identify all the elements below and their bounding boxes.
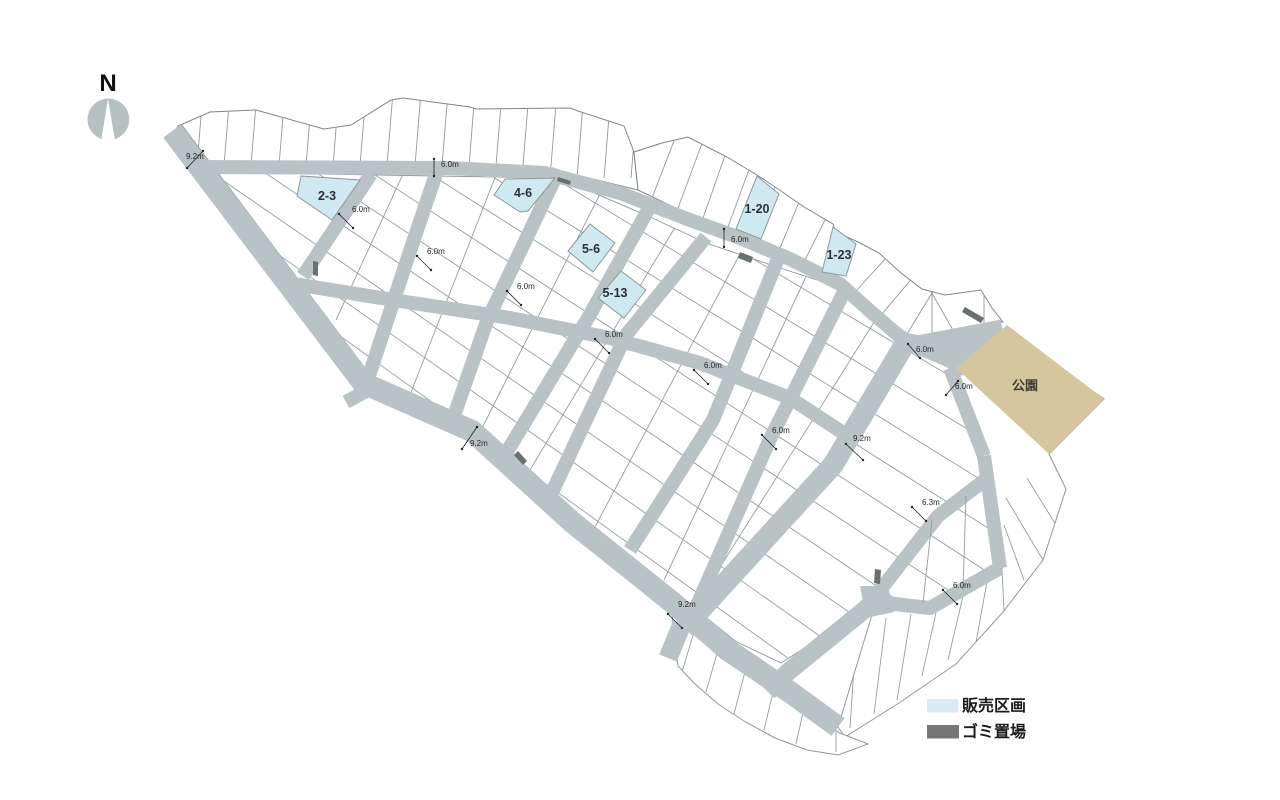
svg-text:6.0m: 6.0m [731,235,749,244]
svg-text:販売区画: 販売区画 [962,696,1026,715]
svg-text:9.2m: 9.2m [853,434,871,443]
svg-text:2-3: 2-3 [318,189,336,203]
svg-text:6.0m: 6.0m [352,205,370,214]
svg-text:6.3m: 6.3m [922,498,940,507]
svg-text:6.0m: 6.0m [704,361,722,370]
svg-text:N: N [99,70,116,97]
svg-text:5-13: 5-13 [602,286,627,300]
svg-text:6.0m: 6.0m [517,282,535,291]
svg-text:6.0m: 6.0m [441,160,459,169]
svg-text:6.0m: 6.0m [916,345,934,354]
svg-text:1-23: 1-23 [826,248,851,262]
svg-text:6.0m: 6.0m [427,247,445,256]
svg-text:6.0m: 6.0m [772,426,790,435]
svg-text:6.0m: 6.0m [955,382,973,391]
svg-text:6.0m: 6.0m [605,330,623,339]
svg-text:1-20: 1-20 [744,202,769,216]
svg-text:6.0m: 6.0m [953,581,971,590]
svg-text:公園: 公園 [1012,378,1038,393]
svg-text:5-6: 5-6 [582,242,600,256]
svg-text:4-6: 4-6 [514,186,532,200]
svg-text:9.2m: 9.2m [470,439,488,448]
svg-text:ゴミ置場: ゴミ置場 [962,722,1026,741]
svg-text:9.2m: 9.2m [678,600,696,609]
